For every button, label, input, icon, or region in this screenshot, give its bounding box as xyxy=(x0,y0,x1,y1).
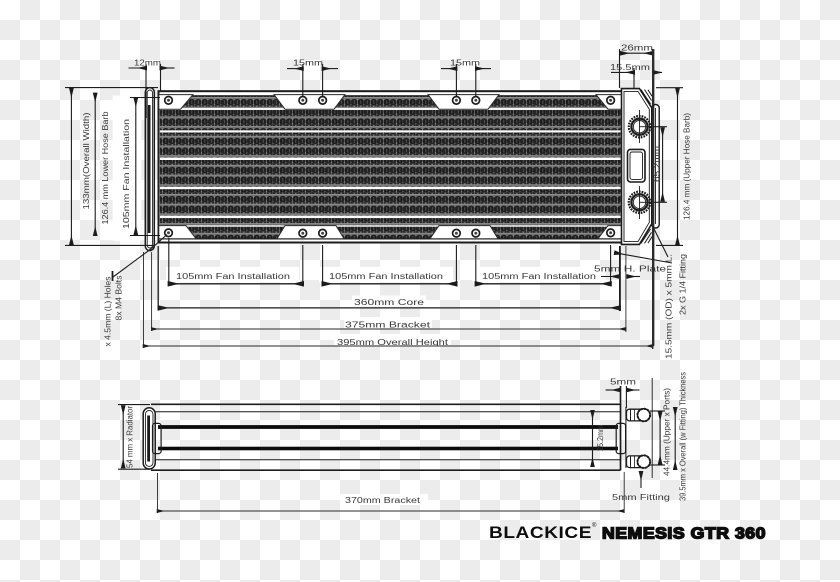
svg-text:5mm Fitting: 5mm Fitting xyxy=(612,493,670,502)
svg-text:126.4 mm (Upper Hose Barb): 126.4 mm (Upper Hose Barb) xyxy=(683,113,692,220)
svg-text:39.5mm x Overall (w Fitting) T: 39.5mm x Overall (w Fitting) Thickness xyxy=(679,372,688,501)
svg-text:12mm: 12mm xyxy=(134,59,161,68)
svg-text:105mm Fan Installation: 105mm Fan Installation xyxy=(176,272,290,281)
svg-text:375mm Bracket: 375mm Bracket xyxy=(345,321,431,330)
svg-text:15.5mm: 15.5mm xyxy=(610,63,650,72)
svg-text:126.4 mm Lower Hose Barb: 126.4 mm Lower Hose Barb xyxy=(101,111,110,225)
svg-text:25.2mm: 25.2mm xyxy=(596,425,605,451)
svg-text:15mm: 15mm xyxy=(293,59,323,68)
svg-text:BLACKICE: BLACKICE xyxy=(489,523,592,542)
svg-text:395mm Overall Height: 395mm Overall Height xyxy=(337,338,449,347)
svg-text:®: ® xyxy=(592,522,597,529)
svg-text:NEMESIS GTR 360: NEMESIS GTR 360 xyxy=(602,526,766,543)
svg-text:105mm Fan Installation: 105mm Fan Installation xyxy=(122,119,131,229)
svg-text:5mm H. Plate: 5mm H. Plate xyxy=(594,265,666,274)
svg-text:x 4.5mm (L) Holes: x 4.5mm (L) Holes xyxy=(104,276,113,346)
svg-text:5mm: 5mm xyxy=(610,378,636,387)
svg-text:54 mm x Radiator: 54 mm x Radiator xyxy=(126,406,135,468)
svg-text:2x G 1/4 Fitting: 2x G 1/4 Fitting xyxy=(679,254,688,315)
svg-text:105mm Fan Installation: 105mm Fan Installation xyxy=(329,272,443,281)
svg-text:8x M4 Bolts: 8x M4 Bolts xyxy=(115,275,124,320)
svg-text:105mm Fan Installation: 105mm Fan Installation xyxy=(482,272,596,281)
svg-text:15mm: 15mm xyxy=(450,59,480,68)
svg-text:44.4mm (Upper x Ports): 44.4mm (Upper x Ports) xyxy=(663,388,672,476)
svg-text:360mm Core: 360mm Core xyxy=(354,298,424,307)
svg-text:26mm: 26mm xyxy=(621,44,653,53)
svg-text:370mm Bracket: 370mm Bracket xyxy=(345,496,421,505)
svg-text:133mm(Overall Width): 133mm(Overall Width) xyxy=(82,112,91,210)
svg-text:65.2mm: 65.2mm xyxy=(653,146,662,182)
